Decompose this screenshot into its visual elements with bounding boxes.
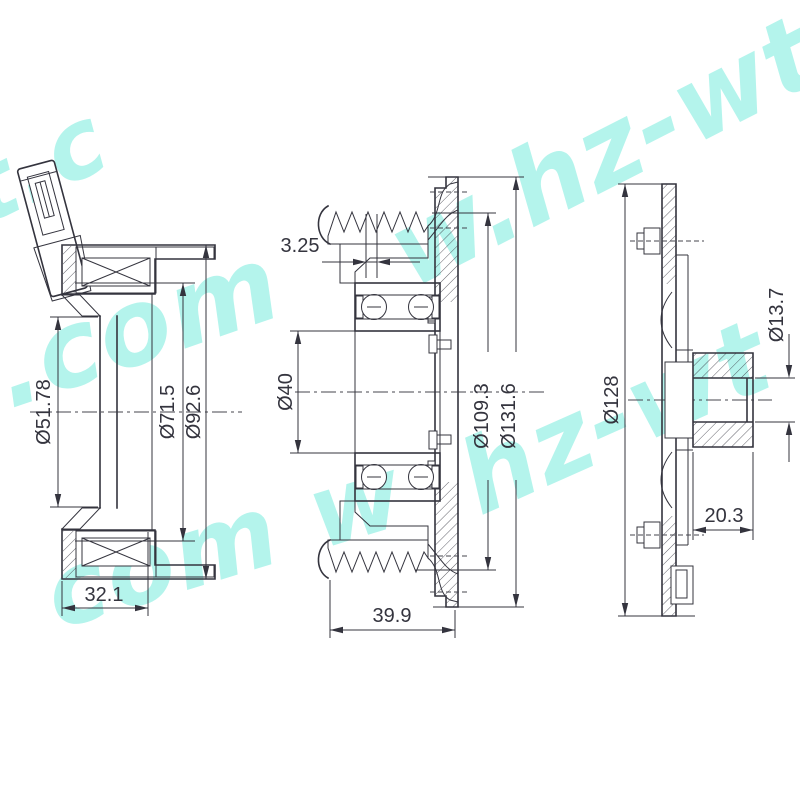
dim-label: 39.9 <box>373 605 412 627</box>
belt-grooves-bottom <box>328 540 428 572</box>
dim-label: Ø51.78 <box>33 379 55 445</box>
view-coil-housing: Ø51.78 Ø71.5 Ø92.6 32.1 <box>13 158 242 616</box>
dim-shaft-bore: Ø13.7 <box>755 288 795 462</box>
dim-label: 3.25 <box>281 235 320 257</box>
dim-label: Ø92.6 <box>183 385 205 439</box>
dim-boss-length: 20.3 <box>693 452 753 540</box>
dim-groove-offset: 3.25 <box>281 214 420 278</box>
armature-disc-hatch <box>662 184 676 284</box>
bearing-bottom <box>355 453 440 501</box>
view-hub: Ø128 Ø13.7 20.3 <box>601 184 795 616</box>
housing-section-hatch <box>63 246 76 293</box>
hub-sleeve <box>665 362 693 438</box>
technical-drawing: Ø51.78 Ø71.5 Ø92.6 32.1 <box>0 0 800 800</box>
drawing-canvas: t.c t.com com w w.hz-wt. hz-wt <box>0 0 800 800</box>
dim-label: 32.1 <box>85 584 124 606</box>
dim-label: Ø71.5 <box>157 385 179 439</box>
belt-grooves-top <box>328 212 428 244</box>
dim-label: 20.3 <box>705 505 744 527</box>
dim-label: Ø13.7 <box>766 288 788 342</box>
dim-label: Ø128 <box>601 376 623 425</box>
flange-section-hatch <box>435 188 458 302</box>
dim-label: Ø40 <box>275 373 297 411</box>
dim-label: Ø131.6 <box>498 383 520 449</box>
bearing-top <box>355 283 440 331</box>
dim-label: Ø109.3 <box>471 383 493 449</box>
view-pulley: 3.25 Ø40 Ø109.3 Ø131.6 <box>275 177 545 638</box>
housing-step <box>62 295 100 316</box>
